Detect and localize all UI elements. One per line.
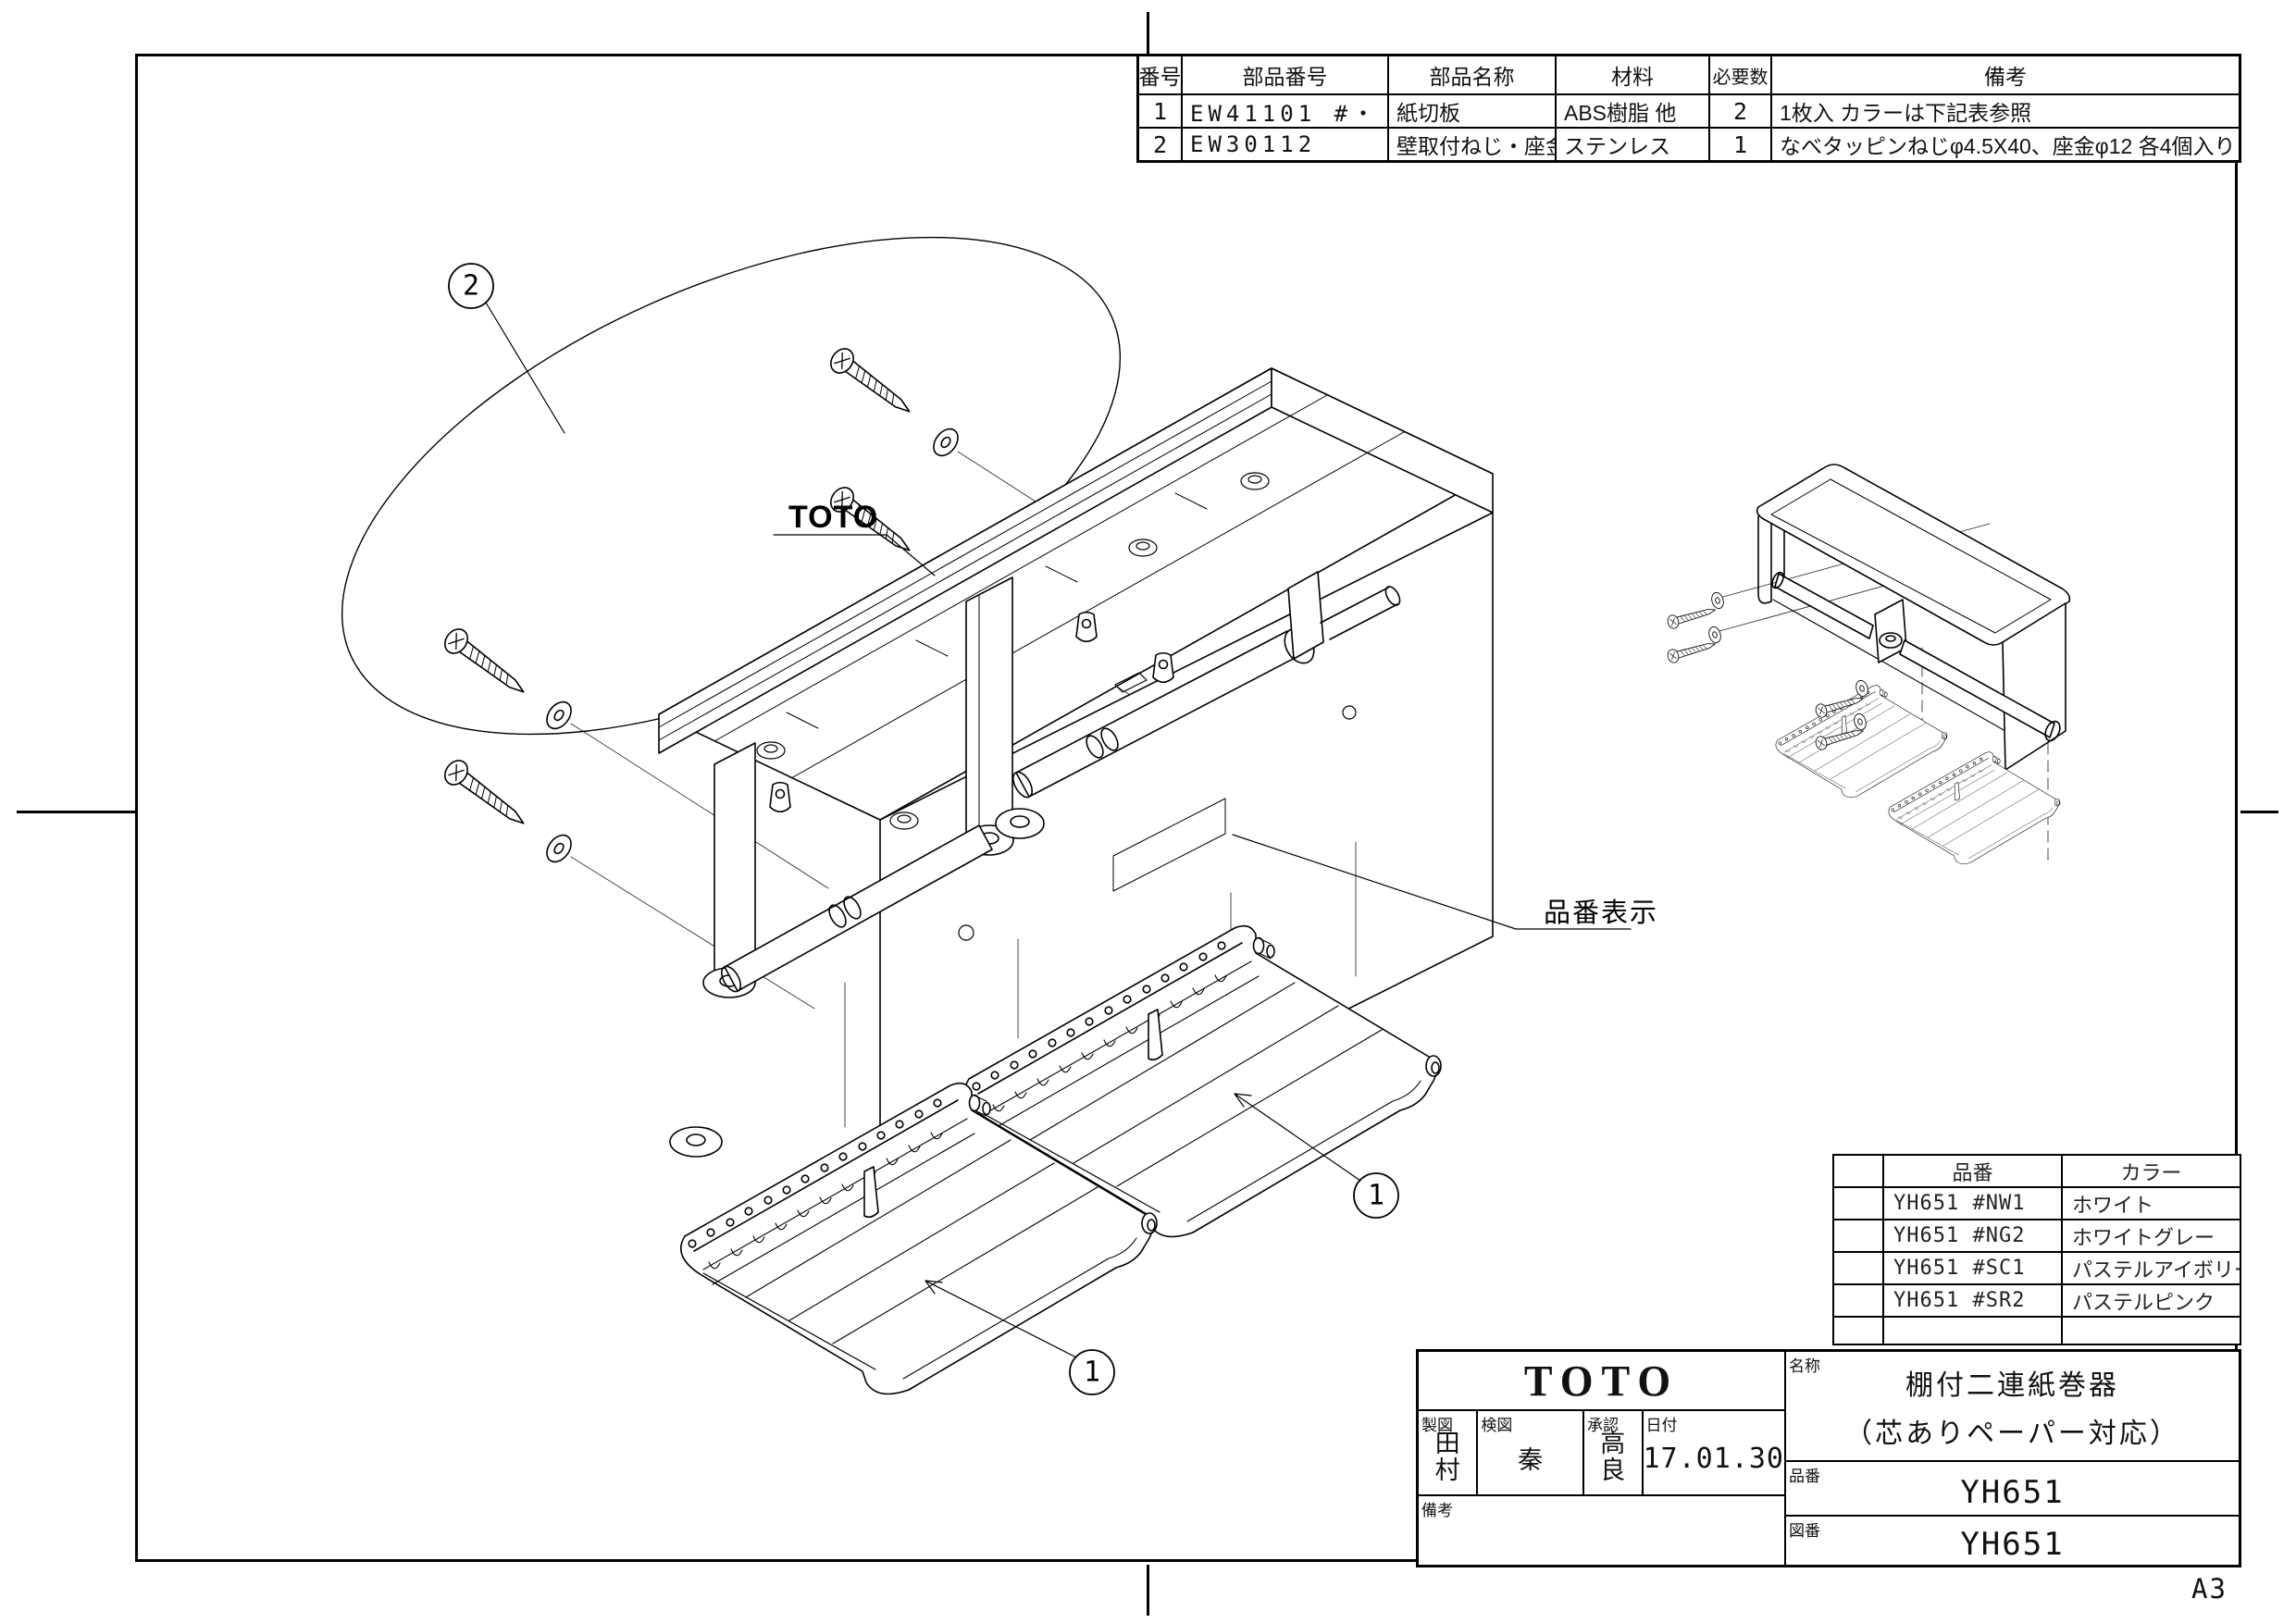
part-remarks: 1枚入 カラーは下記表参照 [1770, 93, 2239, 127]
color-code: YH651 #NG2 [1882, 1219, 2061, 1251]
drawing-no-value: YH651 [1960, 1526, 2064, 1563]
table-row: YH651 #SC1 パステルアイボリー [1834, 1251, 2240, 1283]
drawing-sheet: { "sheet": { "size_label": "A3" }, "part… [0, 0, 2296, 1623]
table-row: YH651 #NW1 ホワイト [1834, 1186, 2240, 1219]
name-label: 名称 [1789, 1353, 1820, 1376]
checker-name: 秦 [1518, 1440, 1543, 1476]
part-qty: 2 [1708, 93, 1770, 127]
date-value: 17.01.30 [1644, 1443, 1785, 1475]
approver-label: 承認 [1587, 1412, 1619, 1435]
approver-name: 高良 [1598, 1431, 1627, 1484]
table-row-empty [1834, 1316, 2240, 1344]
product-name-line1: 棚付二連紙巻器 [1905, 1366, 2119, 1406]
center-mark-bottom [1147, 1565, 1149, 1616]
product-name-line2: （芯ありペーパー対応） [1844, 1414, 2180, 1455]
col-header: カラー [2061, 1156, 2240, 1186]
part-name: 紙切板 [1387, 93, 1555, 127]
approver-cell: 承認 高良 [1584, 1411, 1643, 1494]
parts-table: 番号 部品番号 部品名称 材料 必要数 備考 1 EW41101 #・・・ 紙切… [1136, 54, 2241, 163]
color-table: 品番 カラー YH651 #NW1 ホワイト YH651 #NG2 ホワイトグレ… [1832, 1154, 2241, 1345]
part-name: 壁取付ねじ・座金 [1387, 127, 1555, 160]
center-mark-left [17, 811, 136, 813]
parts-table-header: 番号 部品番号 部品名称 材料 必要数 備考 [1139, 56, 2239, 93]
title-block: TOTO 製図 田村 検図 秦 承認 高良 日付 17.01.30 備考 [1416, 1349, 2241, 1567]
part-material: ABS樹脂 他 [1555, 93, 1708, 127]
table-row: YH651 #NG2 ホワイトグレー [1834, 1219, 2240, 1251]
color-name: ホワイト [2061, 1186, 2240, 1219]
color-code: YH651 #SR2 [1882, 1283, 2061, 1316]
drawing-no-cell: 図番 YH651 [1786, 1517, 2239, 1565]
color-name: ホワイトグレー [2061, 1219, 2240, 1251]
col-header: 部品名称 [1387, 56, 1555, 93]
toto-logo-text: TOTO [1524, 1355, 1679, 1406]
table-row: 1 EW41101 #・・・ 紙切板 ABS樹脂 他 2 1枚入 カラーは下記表… [1139, 93, 2239, 127]
part-no: 1 [1139, 93, 1181, 127]
col-header: 材料 [1555, 56, 1708, 93]
part-no: 2 [1139, 127, 1181, 160]
part-remarks: なべタッピンねじφ4.5X40、座金φ12 各4個入り [1770, 127, 2239, 160]
color-code: YH651 #NW1 [1882, 1186, 2061, 1219]
center-mark-top [1147, 12, 1149, 55]
table-row: 2 EW30112 壁取付ねじ・座金 ステンレス 1 なべタッピンねじφ4.5X… [1139, 127, 2239, 160]
color-code: YH651 #SC1 [1882, 1251, 2061, 1283]
part-material: ステンレス [1555, 127, 1708, 160]
col-header: 必要数 [1708, 56, 1770, 93]
date-cell: 日付 17.01.30 [1644, 1411, 1785, 1494]
date-label: 日付 [1646, 1412, 1678, 1435]
part-number: EW30112 [1181, 127, 1387, 160]
sheet-size-label: A3 [2191, 1573, 2228, 1604]
col-header: 部品番号 [1181, 56, 1387, 93]
part-no-value: YH651 [1960, 1474, 2064, 1511]
remarks-cell: 備考 [1419, 1496, 1784, 1565]
color-table-header: 品番 カラー [1834, 1156, 2240, 1186]
part-qty: 1 [1708, 127, 1770, 160]
part-no-cell: 品番 YH651 [1786, 1462, 2239, 1517]
color-name: パステルピンク [2061, 1283, 2240, 1316]
drawing-no-label: 図番 [1789, 1518, 1820, 1541]
drafter-cell: 製図 田村 [1419, 1411, 1478, 1494]
product-name-cell: 名称 棚付二連紙巻器 （芯ありペーパー対応） [1786, 1352, 2239, 1462]
col-header: 備考 [1770, 56, 2239, 93]
toto-logo: TOTO [1419, 1352, 1784, 1411]
col-header: 番号 [1139, 56, 1181, 93]
color-name: パステルアイボリー [2061, 1251, 2240, 1283]
part-no-label: 品番 [1789, 1463, 1820, 1486]
col-header: 品番 [1882, 1156, 2061, 1186]
center-mark-right [2240, 811, 2278, 813]
checker-cell: 検図 秦 [1478, 1411, 1584, 1494]
table-row: YH651 #SR2 パステルピンク [1834, 1283, 2240, 1316]
remarks-label: 備考 [1421, 1497, 1453, 1520]
drafter-label: 製図 [1421, 1412, 1453, 1435]
part-number: EW41101 #・・・ [1181, 93, 1387, 127]
drafter-name: 田村 [1433, 1431, 1462, 1484]
checker-label: 検図 [1481, 1412, 1512, 1435]
